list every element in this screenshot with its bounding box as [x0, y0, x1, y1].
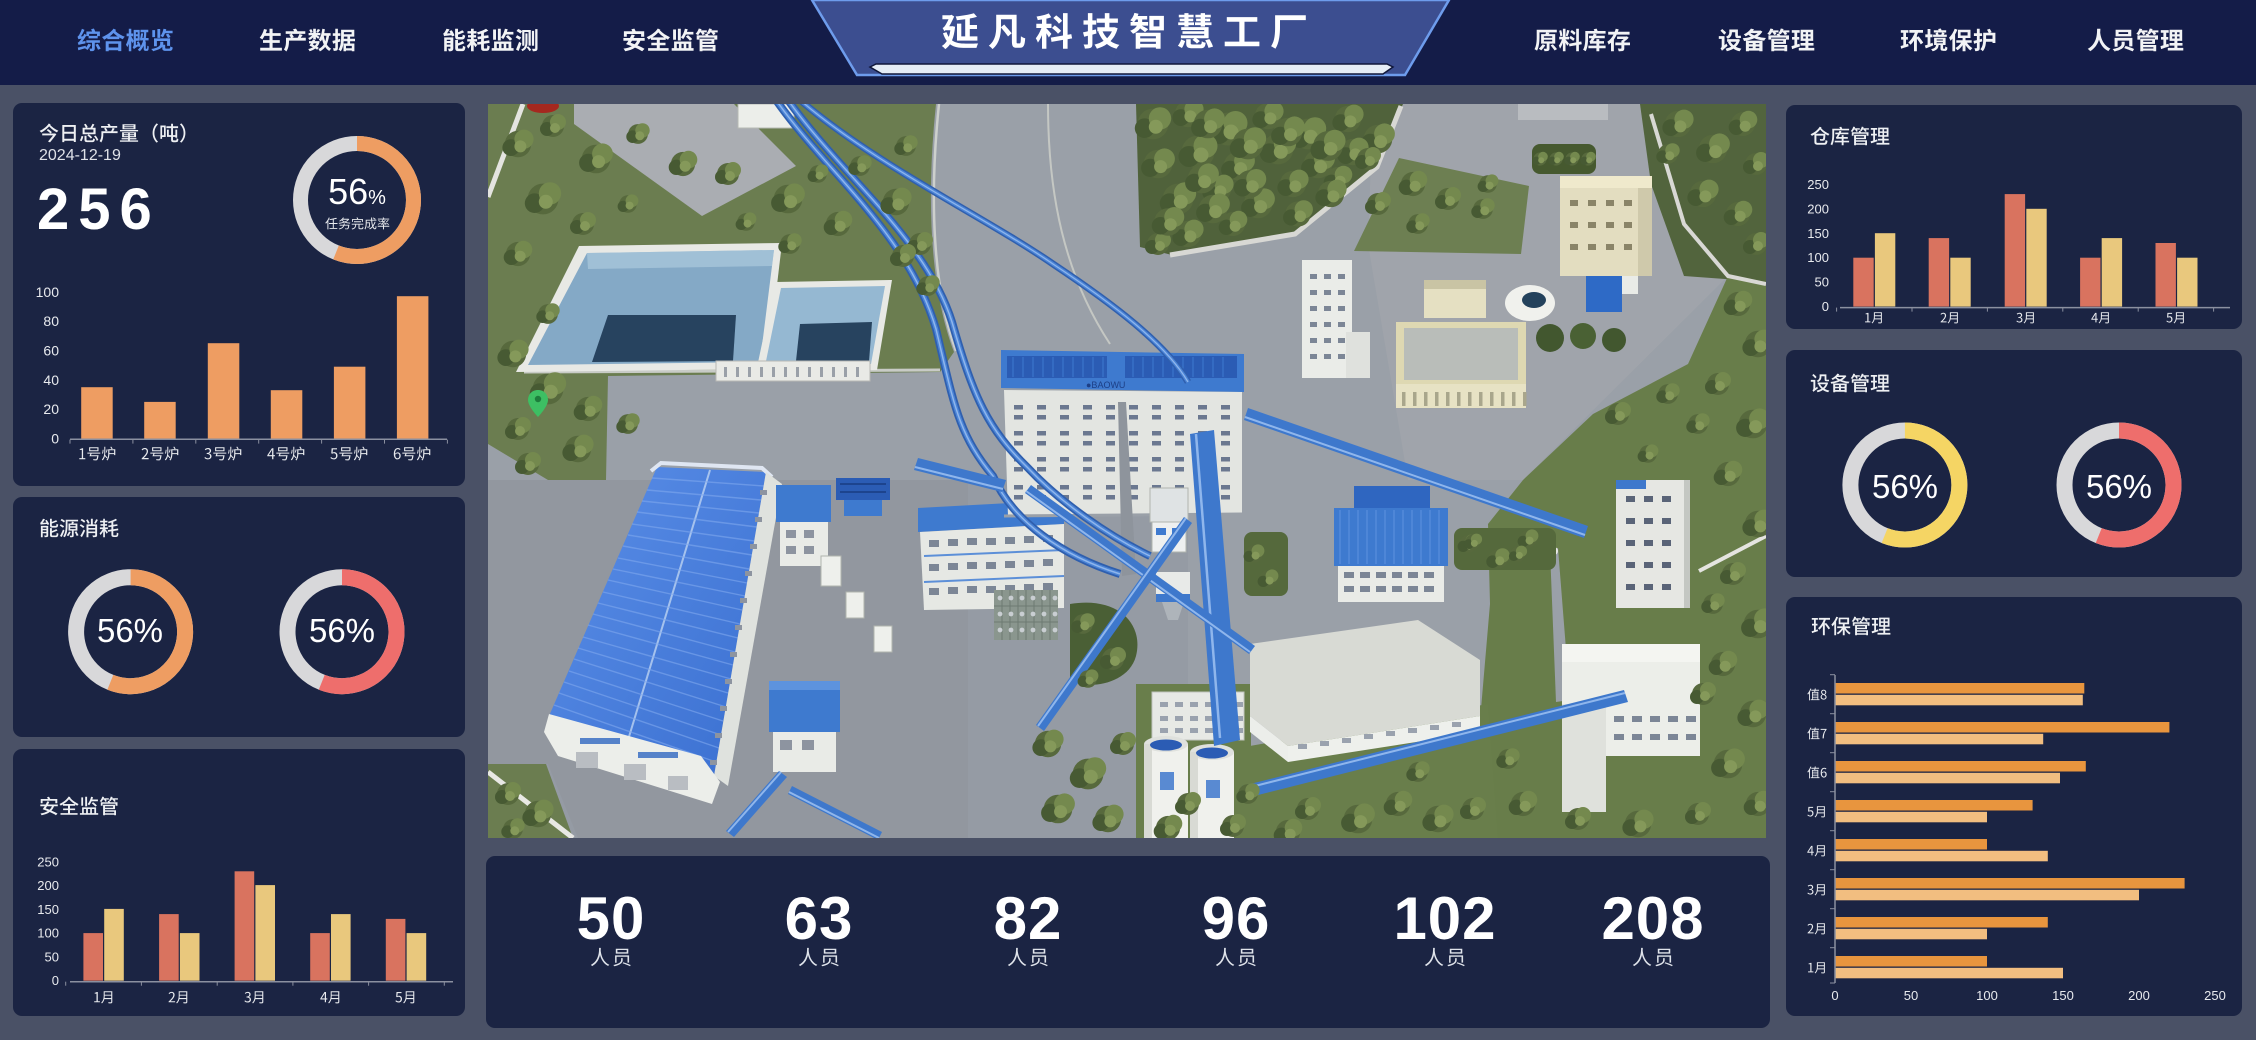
svg-text:100: 100 — [1807, 250, 1829, 265]
svg-text:150: 150 — [37, 902, 59, 917]
svg-text:40: 40 — [43, 372, 59, 388]
svg-text:50: 50 — [45, 949, 59, 964]
svg-text:●BAOWU: ●BAOWU — [1086, 380, 1125, 390]
svg-text:250: 250 — [2204, 988, 2226, 1003]
svg-text:200: 200 — [37, 878, 59, 893]
svg-text:100: 100 — [37, 926, 59, 941]
svg-text:250: 250 — [1807, 177, 1829, 192]
svg-text:0: 0 — [1831, 988, 1838, 1003]
svg-text:100: 100 — [1976, 988, 1998, 1003]
svg-text:100: 100 — [36, 284, 60, 300]
svg-text:150: 150 — [2052, 988, 2074, 1003]
svg-text:50: 50 — [1904, 988, 1918, 1003]
svg-text:0: 0 — [51, 431, 59, 447]
svg-text:60: 60 — [43, 343, 59, 359]
svg-text:200: 200 — [2128, 988, 2150, 1003]
svg-text:0: 0 — [1822, 299, 1829, 314]
svg-text:50: 50 — [1815, 275, 1829, 290]
svg-text:0: 0 — [52, 973, 59, 988]
svg-text:200: 200 — [1807, 201, 1829, 216]
svg-text:150: 150 — [1807, 226, 1829, 241]
svg-text:250: 250 — [37, 854, 59, 869]
svg-text:80: 80 — [43, 313, 59, 329]
svg-text:20: 20 — [43, 401, 59, 417]
